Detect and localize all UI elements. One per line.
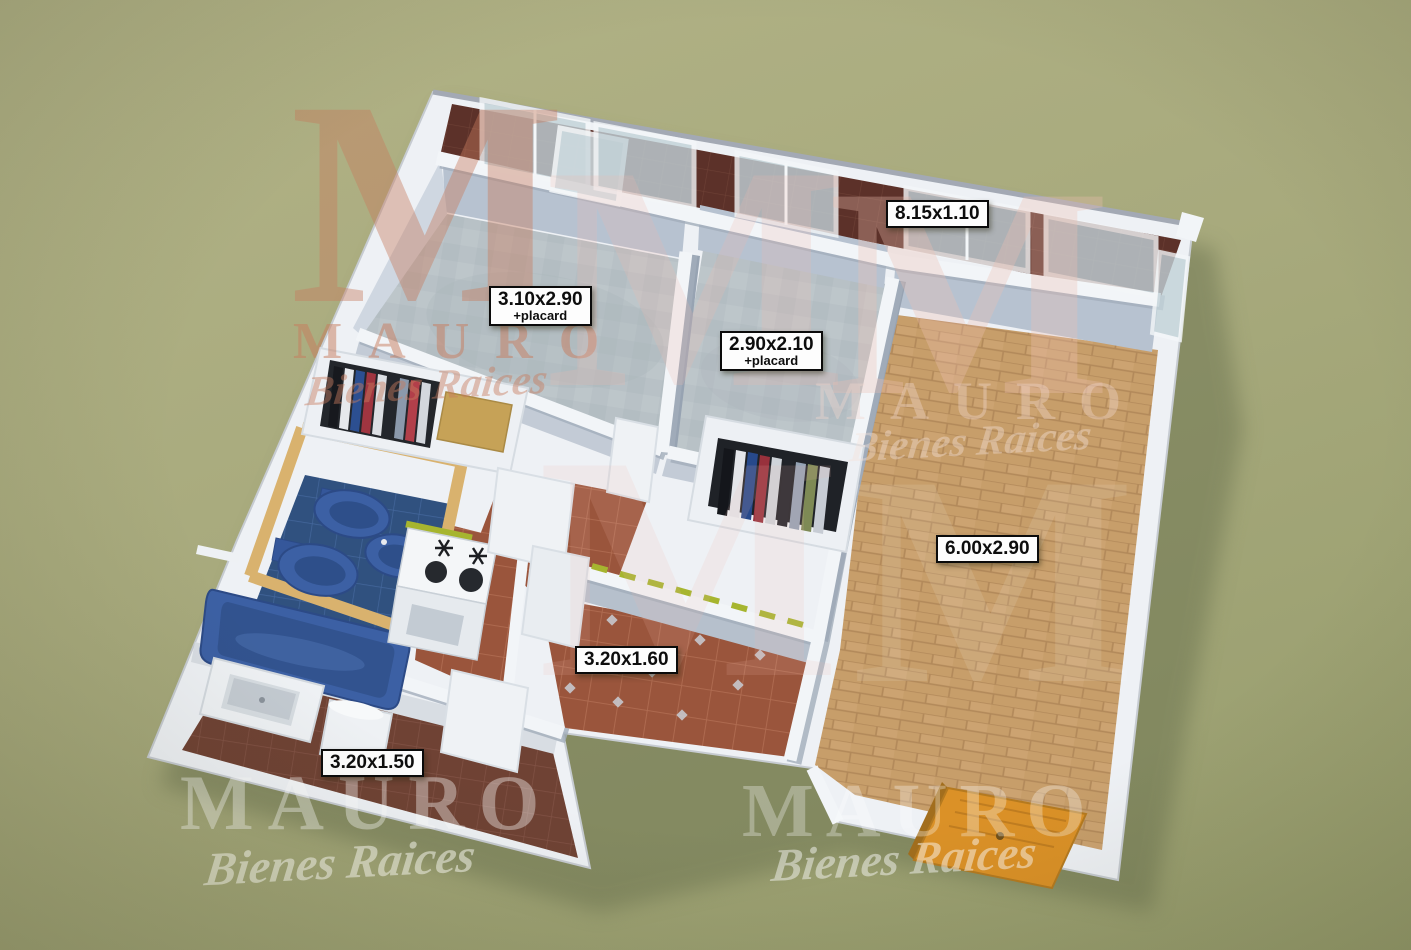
floor-plan-scene: M MAURO Bienes Raices M M M MAURO Bienes…	[0, 0, 1411, 950]
room-dimensions: 3.20x1.50	[330, 752, 415, 773]
room-label-bedroom-1: 3.10x2.90 +placard	[489, 286, 592, 326]
corner-window	[1152, 252, 1188, 340]
room-dimensions: 3.10x2.90	[498, 289, 583, 310]
room-dimensions: 6.00x2.90	[945, 538, 1030, 559]
room-label-balcony: 8.15x1.10	[886, 200, 989, 228]
room-dimensions: 3.20x1.60	[584, 649, 669, 670]
room-dimensions: 8.15x1.10	[895, 203, 980, 224]
room-note: +placard	[498, 309, 583, 323]
floor-plan-render	[0, 0, 1411, 950]
room-dimensions: 2.90x2.10	[729, 334, 814, 355]
room-label-bedroom-2: 2.90x2.10 +placard	[720, 331, 823, 371]
room-label-laundry: 3.20x1.50	[321, 749, 424, 777]
room-label-living-room: 6.00x2.90	[936, 535, 1039, 563]
kitchen-stove	[388, 528, 497, 660]
room-label-hall-kitchen: 3.20x1.60	[575, 646, 678, 674]
room-note: +placard	[729, 354, 814, 368]
